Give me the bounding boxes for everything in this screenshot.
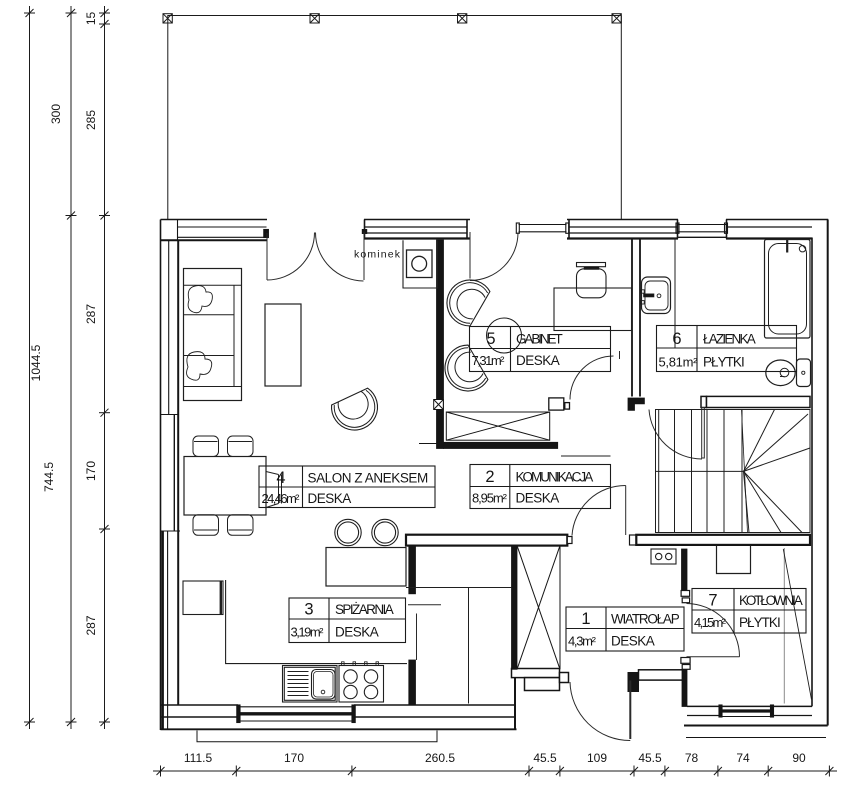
svg-text:5: 5: [486, 330, 495, 348]
svg-text:111.5: 111.5: [184, 751, 213, 765]
svg-text:SPIŻARNIA: SPIŻARNIA: [335, 602, 394, 617]
svg-text:744.5: 744.5: [42, 462, 56, 492]
svg-text:4,15m²: 4,15m²: [694, 615, 727, 630]
svg-text:90: 90: [792, 751, 806, 765]
svg-text:KOMUNIKACJA: KOMUNIKACJA: [516, 470, 594, 485]
svg-text:45.5: 45.5: [638, 751, 662, 765]
svg-text:109: 109: [587, 751, 607, 765]
svg-text:170: 170: [84, 461, 98, 481]
svg-text:PŁYTKI: PŁYTKI: [703, 355, 745, 370]
svg-text:ŁAZIENKA: ŁAZIENKA: [703, 332, 756, 347]
svg-text:24,46m²: 24,46m²: [262, 491, 301, 506]
svg-text:DESKA: DESKA: [335, 625, 379, 640]
svg-text:7: 7: [708, 592, 717, 610]
svg-text:KOTŁOWNIA: KOTŁOWNIA: [739, 593, 803, 608]
svg-text:6: 6: [672, 330, 681, 348]
svg-text:GABINET: GABINET: [516, 332, 563, 347]
svg-text:PŁYTKI: PŁYTKI: [739, 615, 781, 630]
svg-text:1: 1: [581, 610, 590, 628]
svg-text:4: 4: [276, 469, 285, 487]
svg-text:74: 74: [736, 751, 750, 765]
svg-text:1044.5: 1044.5: [29, 344, 43, 381]
svg-text:3: 3: [304, 601, 313, 619]
svg-text:170: 170: [284, 751, 304, 765]
svg-text:WIATROŁAP: WIATROŁAP: [611, 612, 680, 627]
svg-text:SALON Z ANEKSEM: SALON Z ANEKSEM: [308, 471, 429, 486]
svg-text:4,3m²: 4,3m²: [568, 634, 597, 649]
svg-text:5,81m²: 5,81m²: [659, 355, 699, 370]
svg-text:285: 285: [84, 110, 98, 130]
svg-text:8,95m²: 8,95m²: [472, 491, 508, 506]
svg-text:15: 15: [84, 12, 98, 26]
svg-text:DESKA: DESKA: [611, 634, 655, 649]
svg-text:78: 78: [685, 751, 699, 765]
svg-text:287: 287: [84, 615, 98, 635]
svg-text:DESKA: DESKA: [516, 491, 560, 506]
svg-text:45.5: 45.5: [533, 751, 557, 765]
svg-text:3,19m²: 3,19m²: [291, 625, 325, 640]
svg-text:DESKA: DESKA: [516, 353, 560, 368]
svg-text:2: 2: [485, 468, 494, 486]
svg-text:DESKA: DESKA: [308, 491, 352, 506]
svg-text:300: 300: [49, 104, 63, 124]
svg-text:7,31m²: 7,31m²: [472, 353, 506, 368]
svg-text:260.5: 260.5: [425, 751, 455, 765]
svg-text:287: 287: [84, 304, 98, 324]
